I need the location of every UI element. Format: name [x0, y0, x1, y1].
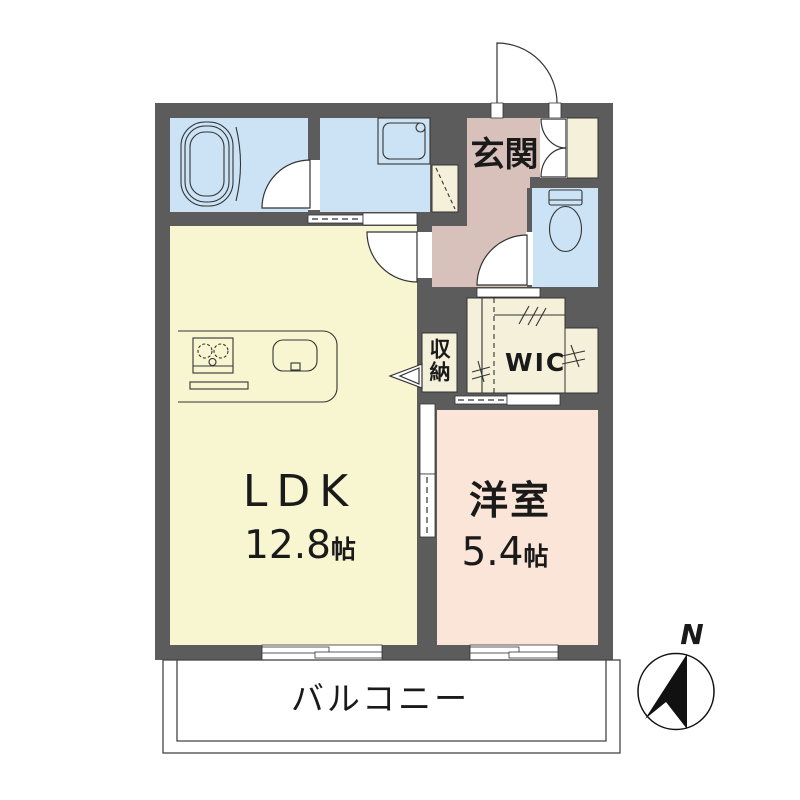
entrance-label: 玄関 [462, 138, 547, 172]
shoe-cabinet [567, 118, 598, 178]
ldk-label: LDK [215, 470, 385, 514]
balcony-label: バルコニー [163, 682, 598, 715]
floorplan: 玄関 LDK 12.8帖 洋室 5.4帖 WIC 収納 バルコニー N [0, 0, 800, 800]
hall-wic-opening [477, 288, 540, 297]
toilet-top-wall [530, 177, 598, 188]
washroom-sliding-door [308, 213, 417, 225]
wic-sliding-door [455, 394, 560, 405]
toilet-floor [532, 188, 598, 287]
bedroom-area-label: 5.4帖 [455, 533, 555, 572]
bedroom-balcony-window [470, 645, 558, 660]
bedroom-area-unit: 帖 [524, 542, 549, 571]
washroom-floor [320, 118, 430, 212]
compass-north-arrow-icon [645, 654, 687, 729]
ldk-area-value: 12.8 [244, 523, 331, 568]
bedroom-floor [437, 410, 598, 645]
bedroom-label: 洋室 [460, 482, 560, 521]
compass [638, 654, 714, 730]
wic-floor-ext [565, 328, 598, 393]
ldk-area-unit: 帖 [331, 535, 356, 564]
ldk-bedroom-sliding-door [420, 404, 435, 537]
compass-north-label: N [662, 621, 722, 649]
bedroom-area-value: 5.4 [461, 530, 523, 575]
wic-label: WIC [505, 350, 561, 375]
storage-label: 収納 [428, 338, 449, 396]
hallway-floor-b [432, 226, 467, 287]
ldk-balcony-window [262, 645, 382, 660]
ldk-floor [170, 226, 417, 645]
ldk-area-label: 12.8帖 [215, 526, 385, 565]
